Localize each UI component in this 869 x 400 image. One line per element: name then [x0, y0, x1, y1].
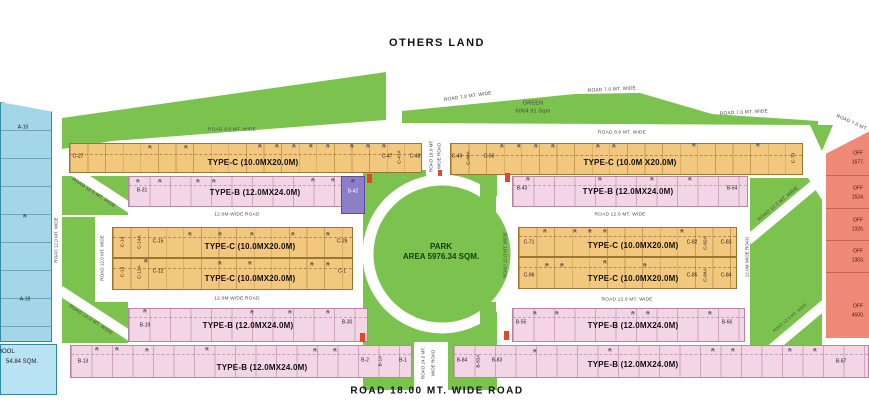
- plot-r-mark: R: [551, 146, 554, 151]
- plot-label: C-82: [687, 241, 698, 246]
- plot-r-mark: R: [248, 263, 251, 268]
- plot-r-mark: R: [588, 231, 591, 236]
- plot-r-mark: R: [331, 180, 334, 185]
- green-corner-row2r: [480, 174, 496, 212]
- plot-r-mark: R: [650, 179, 653, 184]
- plot-r-mark: R: [543, 231, 546, 236]
- plot-r-mark: R: [326, 146, 329, 151]
- road-label-24mt-vert: WIDE ROAD: [432, 350, 437, 377]
- plot-r-mark: R: [145, 350, 148, 355]
- plot-r-mark: R: [136, 181, 139, 186]
- plot-r-mark: R: [708, 313, 711, 318]
- plot-r-mark: R: [608, 350, 611, 355]
- plot-r-mark: R: [813, 350, 816, 355]
- plot-label: C-49A: [468, 151, 473, 165]
- road-label-18mt-vert: WIDE ROAD: [438, 143, 443, 170]
- type-label: TYPE-B (12.0MX24.0M): [588, 361, 679, 369]
- plot-r-mark: R: [218, 234, 221, 239]
- plot-label: C-47A: [399, 150, 404, 164]
- green-corner-row4r: [480, 302, 496, 340]
- plot-r-mark: R: [148, 147, 151, 152]
- plot-label: B-1A: [380, 356, 385, 367]
- road-label-12mt-vert: ROAD 12.0 MT. WIDE: [55, 217, 60, 262]
- type-label: TYPE-C (10.0MX20.0M): [205, 243, 296, 251]
- plot-r-mark: R: [313, 350, 316, 355]
- plot-r-mark: R: [326, 234, 329, 239]
- office-divider: [826, 175, 869, 176]
- plot-r-mark: R: [292, 146, 295, 151]
- plot-r-mark: R: [788, 350, 791, 355]
- school-area-label: 54.84 SQM.: [6, 359, 38, 365]
- office-divider: [826, 208, 869, 209]
- plot-r-mark: R: [573, 231, 576, 236]
- plot-label: C-12A: [139, 265, 144, 279]
- zone-offices: OFF 1677. OFF 1524. OFF 1326. OFF 1303. …: [826, 131, 869, 338]
- plot-label: B-30: [342, 321, 353, 326]
- red-marker: [505, 173, 510, 182]
- plot-r-mark: R: [631, 313, 634, 318]
- type-label: TYPE-B (12.0MX24.0M): [588, 322, 679, 330]
- plot-r-mark: R: [534, 146, 537, 151]
- type-label: TYPE-B (12.0MX24.0M): [210, 189, 301, 197]
- others-land-title: OTHERS LAND: [389, 37, 485, 49]
- type-label: TYPE-C (10.0M X20.0M): [583, 159, 676, 167]
- road-label-12m-wide: 12.0M WIDE ROAD: [214, 298, 259, 303]
- plot-r-mark: R: [692, 145, 695, 150]
- plot-r-mark: R: [643, 265, 646, 270]
- red-marker: [504, 331, 509, 340]
- plot-r-mark: R: [526, 179, 529, 184]
- road-label-8mt: ROAD 8.0 MT. WIDE: [598, 132, 646, 137]
- plot-label: B-83: [492, 359, 503, 364]
- plot-r-mark: R: [382, 146, 385, 151]
- type-label: TYPE-B (12.0MX24.0M): [203, 322, 294, 330]
- office-divider: [826, 272, 869, 273]
- plot-r-mark: R: [350, 146, 353, 151]
- park-name-label: PARK: [430, 243, 452, 251]
- plot-r-mark: R: [291, 234, 294, 239]
- plot-r-mark: R: [250, 234, 253, 239]
- plot-label: C-84A: [705, 268, 710, 282]
- plot-r-mark: R: [560, 265, 563, 270]
- plot-r-mark: R: [326, 264, 329, 269]
- plot-label: C-70: [793, 153, 798, 163]
- plot-r-mark: R: [275, 146, 278, 151]
- plot-r-mark: R: [545, 265, 548, 270]
- plot-r-mark: R: [533, 313, 536, 318]
- red-marker: [438, 170, 442, 176]
- type-label: TYPE-B (12.0MX24.0M): [217, 364, 308, 372]
- office-area: 1524.: [852, 196, 865, 201]
- green-area-label: 6064.91 Sqm: [516, 109, 551, 115]
- plot-r-mark: R: [311, 180, 314, 185]
- plot-r-mark: R: [288, 312, 291, 317]
- plot-label: B-54: [727, 187, 738, 192]
- type-label: TYPE-C (10.0MX20.0M): [588, 275, 679, 283]
- plot-label-a10: A-10: [18, 126, 29, 131]
- road-label-12m-wide-vert: 12.0M WIDE ROAD: [746, 237, 751, 278]
- office-divider: [826, 240, 869, 241]
- plot-r-mark: R: [517, 146, 520, 151]
- plot-label: B-66: [722, 321, 733, 326]
- plot-label: B-31: [137, 189, 148, 194]
- office-label: OFF: [853, 250, 863, 255]
- plot-label: C-84: [721, 274, 732, 279]
- plot-r-mark: R: [555, 313, 558, 318]
- plot-r-mark: R: [212, 181, 215, 186]
- plot-label: C-50: [484, 155, 495, 160]
- plot-label: C-27: [73, 155, 84, 160]
- plot-r-mark: R: [196, 181, 199, 186]
- plot-r-mark: R: [646, 313, 649, 318]
- plot-r-mark: R: [143, 311, 146, 316]
- plot-r-mark: R: [612, 146, 615, 151]
- school-label: SCHOOL: [0, 349, 15, 355]
- green-name-label: GREEN: [523, 101, 544, 107]
- plot-label: C-96: [524, 274, 535, 279]
- road-label-9mt: ROAD 9.0 MT. WIDE: [208, 129, 256, 134]
- road-label-12mt-vert: ROAD 12.0 MT. WIDE: [504, 232, 509, 277]
- type-label: TYPE-B (12.0MX24.0M): [583, 188, 674, 196]
- plot-label: C-47: [382, 155, 393, 160]
- plot-label: C-83: [721, 241, 732, 246]
- plot-label: C-14A: [139, 235, 144, 249]
- plot-label: C-48: [410, 155, 421, 160]
- plot-r-mark: R: [596, 146, 599, 151]
- office-label: OFF: [853, 187, 863, 192]
- road-label-12mt: ROAD 12.0 MT. WIDE: [594, 214, 645, 219]
- plot-label: C-26: [337, 240, 348, 245]
- type-label: TYPE-C (10.0MX20.0M): [588, 242, 679, 250]
- road-label-12m-wide: 12.0M WIDE ROAD: [214, 214, 259, 219]
- plot-label: C-49: [452, 155, 463, 160]
- plot-r-mark: R: [500, 146, 503, 151]
- plot-r-mark: R: [218, 263, 221, 268]
- plot-label: B-55: [516, 321, 527, 326]
- zone-residential-a: [0, 102, 52, 342]
- plot-label: C-14: [122, 237, 127, 247]
- plot-r-mark: R: [144, 261, 147, 266]
- plot-r-mark: R: [326, 312, 329, 317]
- plot-label: B-67: [836, 360, 847, 365]
- plot-r-mark: R: [603, 262, 606, 267]
- plot-r-mark: R: [598, 179, 601, 184]
- site-plan: OFF 1677. OFF 1524. OFF 1326. OFF 1303. …: [0, 0, 869, 400]
- road-label-12mt-vert: ROAD 12.0 MT. WIDE: [101, 235, 106, 280]
- plot-label: C-1: [338, 270, 346, 275]
- office-area: 4500.: [852, 314, 865, 319]
- plot-r-mark: R: [711, 350, 714, 355]
- type-label: TYPE-C (10.0MX20.0M): [208, 159, 299, 167]
- bottom-road-title: ROAD 18.00 MT. WIDE ROAD: [350, 386, 523, 397]
- plot-label: C-15: [153, 240, 164, 245]
- road-label-18mt-vert: ROAD 18.0 MT.: [430, 140, 435, 172]
- plot-r-mark: R: [23, 216, 26, 221]
- plot-label: C-85: [687, 274, 698, 279]
- plot-r-mark: R: [309, 146, 312, 151]
- red-marker: [367, 174, 372, 183]
- plot-r-mark: R: [756, 145, 759, 150]
- plot-r-mark: R: [310, 264, 313, 269]
- plot-label: C-82A: [705, 236, 710, 250]
- plot-label: B-19: [140, 324, 151, 329]
- plot-r-mark: R: [366, 146, 369, 151]
- plot-r-mark: R: [351, 181, 354, 186]
- red-marker: [360, 333, 365, 342]
- green-top-left-band: [62, 72, 386, 149]
- plot-label: B-43: [517, 187, 528, 192]
- plot-label-a18: A-18: [20, 298, 31, 303]
- office-label: OFF: [853, 152, 863, 157]
- office-label: OFF: [853, 305, 863, 310]
- plot-label: C-13: [122, 267, 127, 277]
- plot-r-mark: R: [158, 181, 161, 186]
- plot-r-mark: R: [603, 231, 606, 236]
- plot-r-mark: R: [184, 147, 187, 152]
- plot-r-mark: R: [250, 312, 253, 317]
- plot-label: B-13: [78, 360, 89, 365]
- plot-r-mark: R: [533, 351, 536, 356]
- plot-r-mark: R: [205, 349, 208, 354]
- plot-label: B-2: [361, 359, 369, 364]
- plot-label: C-71: [524, 241, 535, 246]
- road-label-24mt-vert: ROAD 24.0 MT.: [422, 347, 427, 379]
- office-area: 1303.: [852, 259, 865, 264]
- plot-r-mark: R: [258, 146, 261, 151]
- plot-label: B-84: [457, 359, 468, 364]
- plot-r-mark: R: [680, 231, 683, 236]
- road-label-12mt: ROAD 12.0 MT. WIDE: [601, 299, 652, 304]
- plot-r-mark: R: [95, 349, 98, 354]
- plot-r-mark: R: [115, 349, 118, 354]
- office-label: OFF: [853, 219, 863, 224]
- plot-label: C-12: [153, 270, 164, 275]
- green-top-corner: [810, 125, 833, 151]
- office-area: 1326.: [852, 228, 865, 233]
- plot-label: B-42: [348, 190, 359, 195]
- park-area-label: AREA 5976.34 SQM.: [403, 253, 479, 261]
- plot-label: B-83A: [478, 354, 483, 367]
- plot-r-mark: R: [188, 234, 191, 239]
- office-area: 1677.: [852, 161, 865, 166]
- plot-r-mark: R: [731, 350, 734, 355]
- plot-r-mark: R: [333, 350, 336, 355]
- plot-label: B-1: [399, 359, 407, 364]
- type-label: TYPE-C (10.0MX20.0M): [205, 275, 296, 283]
- plot-r-mark: R: [688, 179, 691, 184]
